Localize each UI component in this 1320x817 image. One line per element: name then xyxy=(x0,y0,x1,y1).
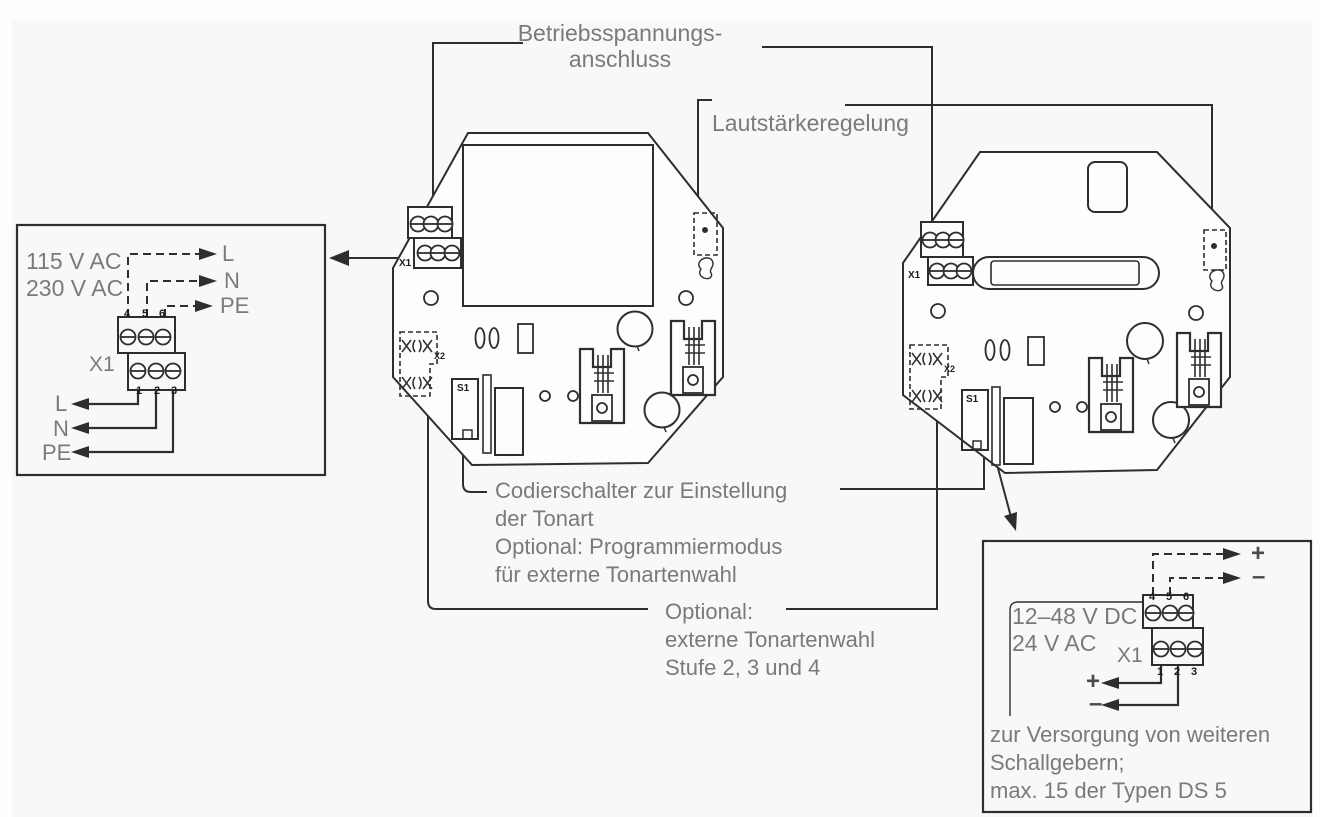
coding-switch-line3: Optional: Programmiermodus xyxy=(495,533,787,561)
pin-label-2: 2 xyxy=(1174,667,1180,678)
wire-label-PE-top: PE xyxy=(220,293,249,319)
optional-line2: externe Tonartenwahl xyxy=(665,626,875,654)
pin-label-1: 1 xyxy=(136,386,142,397)
pcb-left-x1-label: X1 xyxy=(399,259,411,269)
power-connection-label: Betriebsspannungs- anschluss xyxy=(455,20,785,72)
pcb-right-x1-label: X1 xyxy=(908,271,920,281)
right-box-voltage-1: 12–48 V DC xyxy=(1012,603,1137,629)
pcb-right-x2-label: X2 xyxy=(944,364,955,374)
pin-label-6: 6 xyxy=(159,309,165,320)
pin-label-4: 4 xyxy=(124,309,130,320)
supply-note-line1: zur Versorgung von weiteren xyxy=(990,721,1270,749)
wiring-diagram-page: Betriebsspannungs- anschluss Lautstärker… xyxy=(0,0,1320,817)
power-connection-line2: anschluss xyxy=(455,46,785,72)
optional-line1: Optional: xyxy=(665,598,875,626)
wire-label-L-bottom: L xyxy=(55,391,67,417)
wire-label-N-top: N xyxy=(224,268,240,294)
pin-label-5: 5 xyxy=(1166,592,1172,603)
supply-note: zur Versorgung von weiteren Schallgebern… xyxy=(990,721,1270,805)
pin-label-3: 3 xyxy=(171,386,177,397)
coding-switch-line2: der Tonart xyxy=(495,505,787,533)
pcb-left-s1-label: S1 xyxy=(457,384,469,394)
diagram-artwork xyxy=(0,0,1320,817)
pin-label-1: 1 xyxy=(1157,667,1163,678)
power-connection-line1: Betriebsspannungs- xyxy=(455,20,785,46)
pin-label-2: 2 xyxy=(154,386,160,397)
supply-note-line2: Schallgebern; xyxy=(990,749,1270,777)
pin-label-3: 3 xyxy=(1191,667,1197,678)
wire-label-minus-top: – xyxy=(1252,567,1265,587)
optional-line3: Stufe 2, 3 und 4 xyxy=(665,654,875,682)
right-box-voltage-2: 24 V AC xyxy=(1012,630,1096,656)
left-box-terminal-label: X1 xyxy=(89,352,115,378)
optional-tone-selection-label: Optional: externe Tonartenwahl Stufe 2, … xyxy=(665,598,875,682)
wire-label-plus-top: + xyxy=(1251,544,1265,564)
wire-label-PE-bottom: PE xyxy=(42,440,71,466)
wire-label-minus-bottom: – xyxy=(1089,694,1102,714)
supply-note-line3: max. 15 der Typen DS 5 xyxy=(990,777,1270,805)
volume-control-label: Lautstärkeregelung xyxy=(712,110,909,136)
pin-label-6: 6 xyxy=(1183,592,1189,603)
wire-label-plus-bottom: + xyxy=(1086,672,1100,692)
left-box-voltage-2: 230 V AC xyxy=(26,275,123,301)
wire-label-L-top: L xyxy=(222,241,234,267)
pcb-right-s1-label: S1 xyxy=(966,395,978,405)
pin-label-5: 5 xyxy=(142,309,148,320)
coding-switch-line1: Codierschalter zur Einstellung xyxy=(495,477,787,505)
right-box-terminal-label: X1 xyxy=(1117,643,1143,669)
left-box-voltage-1: 115 V AC xyxy=(26,248,121,274)
wire-label-N-bottom: N xyxy=(53,416,69,442)
coding-switch-label: Codierschalter zur Einstellung der Tonar… xyxy=(495,477,787,589)
coding-switch-line4: für externe Tonartenwahl xyxy=(495,561,787,589)
pin-label-4: 4 xyxy=(1149,592,1155,603)
pcb-left-x2-label: X2 xyxy=(434,351,445,361)
